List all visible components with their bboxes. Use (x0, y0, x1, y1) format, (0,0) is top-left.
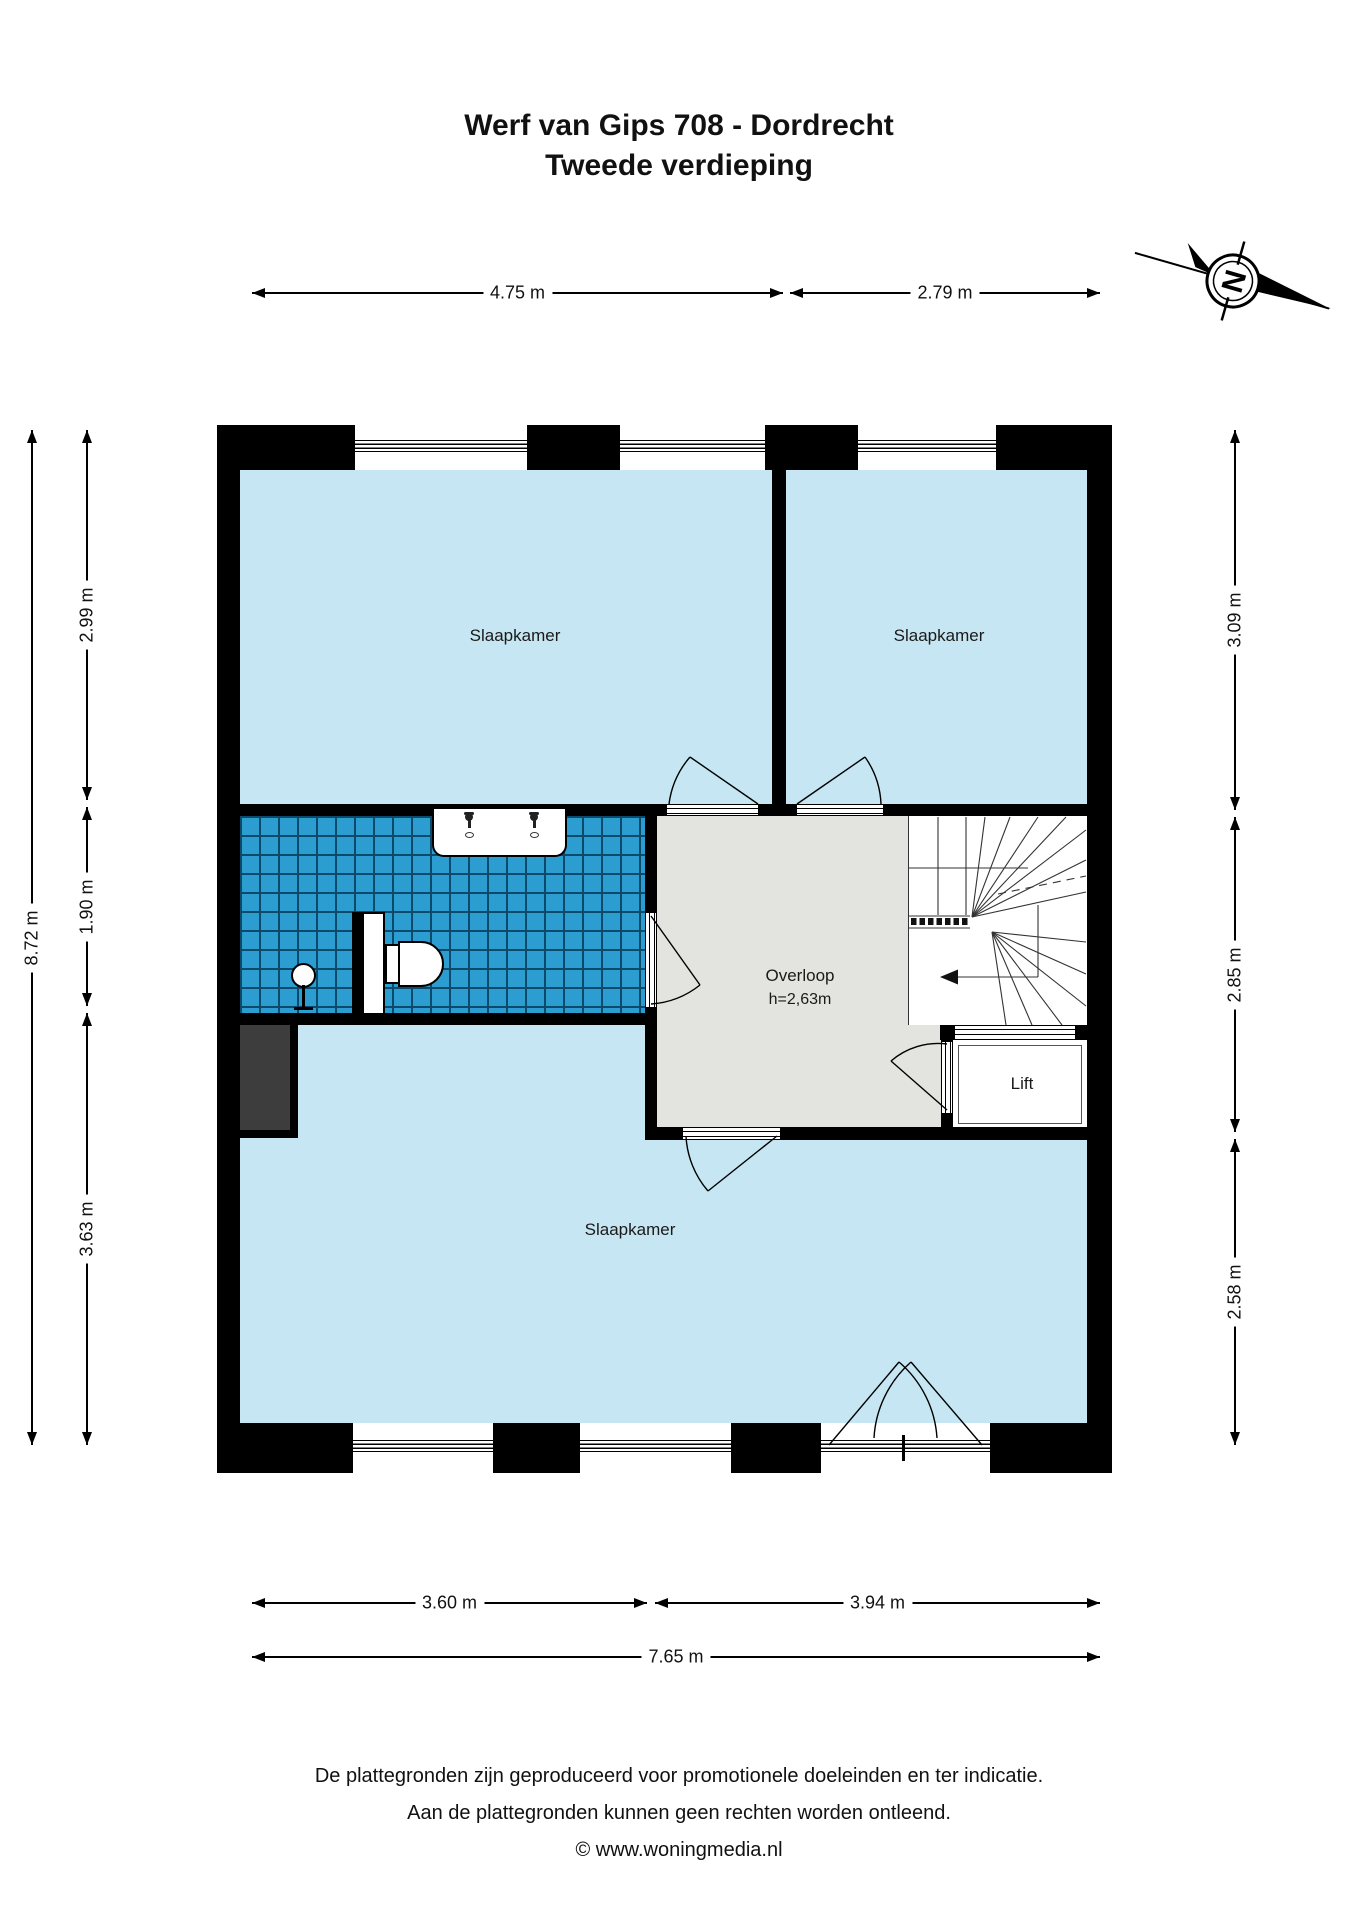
page-title: Werf van Gips 708 - Dordrecht Tweede ver… (0, 106, 1358, 186)
window-top-3 (858, 425, 996, 470)
door-threshold-bedroom-left (667, 804, 758, 816)
faucet-icon (464, 813, 474, 839)
window-bottom-2 (580, 1423, 731, 1473)
shower-base (294, 1007, 313, 1010)
title-line2: Tweede verdieping (0, 146, 1358, 186)
door-threshold-bathroom (645, 913, 657, 1007)
toilet-partition-wall (352, 912, 362, 1015)
shaft (240, 1025, 290, 1130)
toilet-icon (398, 941, 444, 987)
dim-top-1-label: 4.75 m (483, 282, 552, 305)
compass-letter: N (1214, 266, 1252, 296)
faucet-icon (529, 813, 539, 839)
door-threshold-bedroom-right (797, 804, 883, 816)
compass-north-icon: N (1110, 195, 1358, 370)
floorplan-page: Werf van Gips 708 - Dordrecht Tweede ver… (0, 0, 1358, 1920)
window-top-1 (355, 425, 527, 470)
dim-top-2-label: 2.79 m (910, 282, 979, 305)
footer-line1: De plattegronden zijn geproduceerd voor … (0, 1758, 1358, 1795)
sink-counter (432, 809, 567, 857)
faucet-stem (468, 820, 471, 828)
label-bedroom-bottom: Slaapkamer (585, 1220, 676, 1240)
sink-drain (465, 832, 474, 838)
label-landing-height: h=2,63m (769, 991, 832, 1009)
label-lift: Lift (1011, 1074, 1034, 1094)
sink-drain (530, 832, 539, 838)
wall-bedroom-divider (772, 465, 786, 816)
dim-right-2-label: 2.85 m (1224, 940, 1247, 1009)
shaft-border-bottom (240, 1130, 298, 1138)
label-bedroom-top-left: Slaapkamer (470, 626, 561, 646)
label-landing: Overloop (766, 966, 835, 986)
shower-stem (302, 985, 305, 1008)
dim-bottom-1-label: 3.60 m (415, 1592, 484, 1615)
room-bedroom-bottom-main (645, 1140, 1087, 1423)
dim-bottom-total-label: 7.65 m (641, 1646, 710, 1669)
door-threshold-lift-swing (941, 1042, 953, 1113)
door-threshold-landing-bedroom (683, 1127, 780, 1140)
staircase-area (908, 816, 1088, 1025)
window-top-2 (620, 425, 765, 470)
wall-bathroom-bottom (217, 1013, 657, 1025)
footer-disclaimer: De plattegronden zijn geproduceerd voor … (0, 1758, 1358, 1869)
dim-bottom-2-label: 3.94 m (843, 1592, 912, 1615)
faucet-stem (533, 820, 536, 828)
dim-right-3-label: 2.58 m (1224, 1257, 1247, 1326)
shaft-border-right (290, 1025, 298, 1138)
footer-line3: © www.woningmedia.nl (0, 1832, 1358, 1869)
dim-left-2-label: 1.90 m (76, 872, 99, 941)
french-door-center-post (902, 1435, 905, 1461)
title-line1: Werf van Gips 708 - Dordrecht (0, 106, 1358, 146)
wall-left (217, 425, 240, 1473)
french-door-opening (821, 1423, 990, 1473)
dim-left-1-label: 2.99 m (76, 580, 99, 649)
wall-right (1087, 425, 1112, 1473)
footer-line2: Aan de plattegronden kunnen geen rechten… (0, 1795, 1358, 1832)
lift-sliding-door (955, 1025, 1075, 1040)
window-bottom-1 (353, 1423, 493, 1473)
dim-right-1-label: 3.09 m (1224, 585, 1247, 654)
label-bedroom-top-right: Slaapkamer (894, 626, 985, 646)
toilet-partition (362, 912, 385, 1015)
dim-left-total-label: 8.72 m (21, 903, 44, 972)
dim-left-3-label: 3.63 m (76, 1194, 99, 1263)
